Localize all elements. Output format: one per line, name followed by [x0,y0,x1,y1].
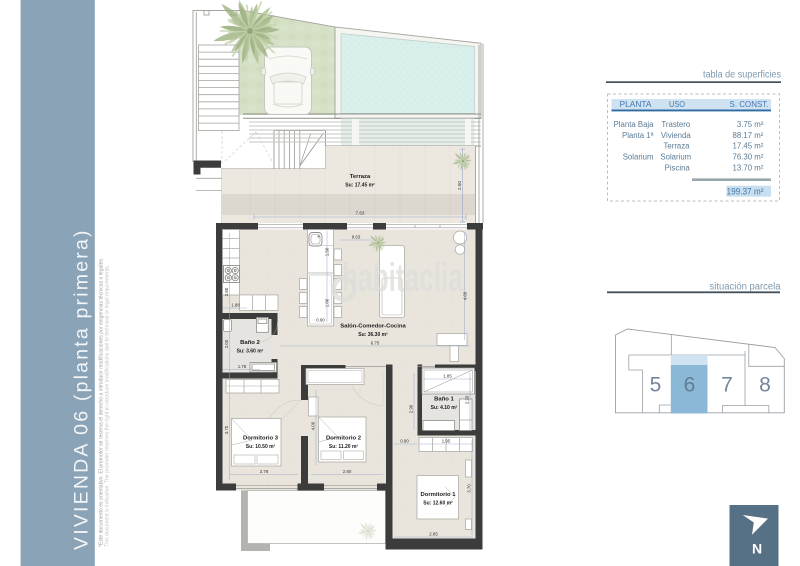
svg-text:7.63: 7.63 [356,211,365,216]
svg-text:4.00: 4.00 [311,421,316,430]
svg-text:76.30 m²: 76.30 m² [733,153,764,162]
svg-text:Planta 1ª: Planta 1ª [622,131,654,140]
svg-text:Su: 10.50 m²: Su: 10.50 m² [246,444,276,450]
svg-text:Solarium: Solarium [623,153,654,162]
svg-text:Salón-Comedor-Cocina: Salón-Comedor-Cocina [340,324,406,330]
svg-text:2.80: 2.80 [343,469,352,474]
svg-text:Su: 11.20 m²: Su: 11.20 m² [329,444,359,450]
svg-text:This document is indicative. T: This document is indicative. The promote… [104,265,110,547]
svg-text:USO: USO [669,100,685,109]
svg-text:199.37 m²: 199.37 m² [727,186,764,196]
svg-text:3.70: 3.70 [467,484,472,493]
svg-text:Baño 1: Baño 1 [434,397,454,403]
svg-text:7: 7 [721,374,733,397]
svg-text:Vivienda: Vivienda [661,131,691,140]
svg-text:2.90: 2.90 [409,404,414,413]
svg-text:Piscina: Piscina [665,164,691,173]
svg-text:Solarium: Solarium [660,153,691,162]
svg-text:tabla de superficies: tabla de superficies [703,70,781,81]
svg-text:8: 8 [759,374,771,397]
svg-text:1.85: 1.85 [443,374,452,379]
svg-text:3.70: 3.70 [224,425,229,434]
svg-text:2.80: 2.80 [224,287,229,296]
svg-text:Dormitorio 1: Dormitorio 1 [420,492,456,498]
svg-text:2.50: 2.50 [457,181,462,190]
svg-text:1.95: 1.95 [442,439,451,444]
svg-text:2.85: 2.85 [429,532,438,537]
svg-text:1.78: 1.78 [238,364,247,369]
svg-text:Dormitorio 2: Dormitorio 2 [326,436,362,442]
svg-text:Dormitorio 3: Dormitorio 3 [243,436,279,442]
svg-text:habitaclia: habitaclia [342,256,463,300]
svg-text:N: N [752,541,762,557]
svg-text:Su: 3.60 m²: Su: 3.60 m² [237,349,264,355]
svg-text:2.78: 2.78 [260,469,269,474]
svg-text:Su: 36.30 m²: Su: 36.30 m² [358,332,388,338]
svg-text:6.75: 6.75 [371,341,380,346]
svg-text:0.90: 0.90 [316,318,325,323]
svg-text:1.80: 1.80 [325,298,330,307]
svg-text:Planta Baja: Planta Baja [614,120,655,129]
svg-text:2.00: 2.00 [224,339,229,348]
svg-text:1.88: 1.88 [231,303,240,308]
svg-text:8.63: 8.63 [352,235,361,240]
svg-text:88.17 m²: 88.17 m² [733,131,764,140]
svg-text:0.90: 0.90 [400,439,409,444]
svg-text:Terraza: Terraza [664,142,691,151]
svg-text:Trastero: Trastero [661,120,690,129]
svg-text:S. CONST.: S. CONST. [730,100,769,109]
svg-text:2.20: 2.20 [465,395,470,404]
svg-text:Su: 4.10 m²: Su: 4.10 m² [431,405,458,411]
svg-text:3.75 m²: 3.75 m² [737,120,764,129]
svg-text:Su: 17.45 m²: Su: 17.45 m² [345,183,375,189]
svg-text:PLANTA: PLANTA [620,100,653,109]
svg-text:5: 5 [650,374,662,397]
svg-text:Terraza: Terraza [350,174,371,180]
svg-text:4.60: 4.60 [463,291,468,300]
svg-text:1.50: 1.50 [325,247,330,256]
svg-text:17.45 m²: 17.45 m² [733,142,764,151]
svg-text:6: 6 [684,374,696,397]
svg-text:situación parcela: situación parcela [710,282,781,293]
svg-text:13.70 m²: 13.70 m² [733,164,764,173]
svg-text:VIVIENDA 06 (planta primera): VIVIENDA 06 (planta primera) [71,228,93,550]
svg-text:Baño 2: Baño 2 [240,340,260,346]
svg-text:Su: 12.60 m²: Su: 12.60 m² [423,501,453,507]
